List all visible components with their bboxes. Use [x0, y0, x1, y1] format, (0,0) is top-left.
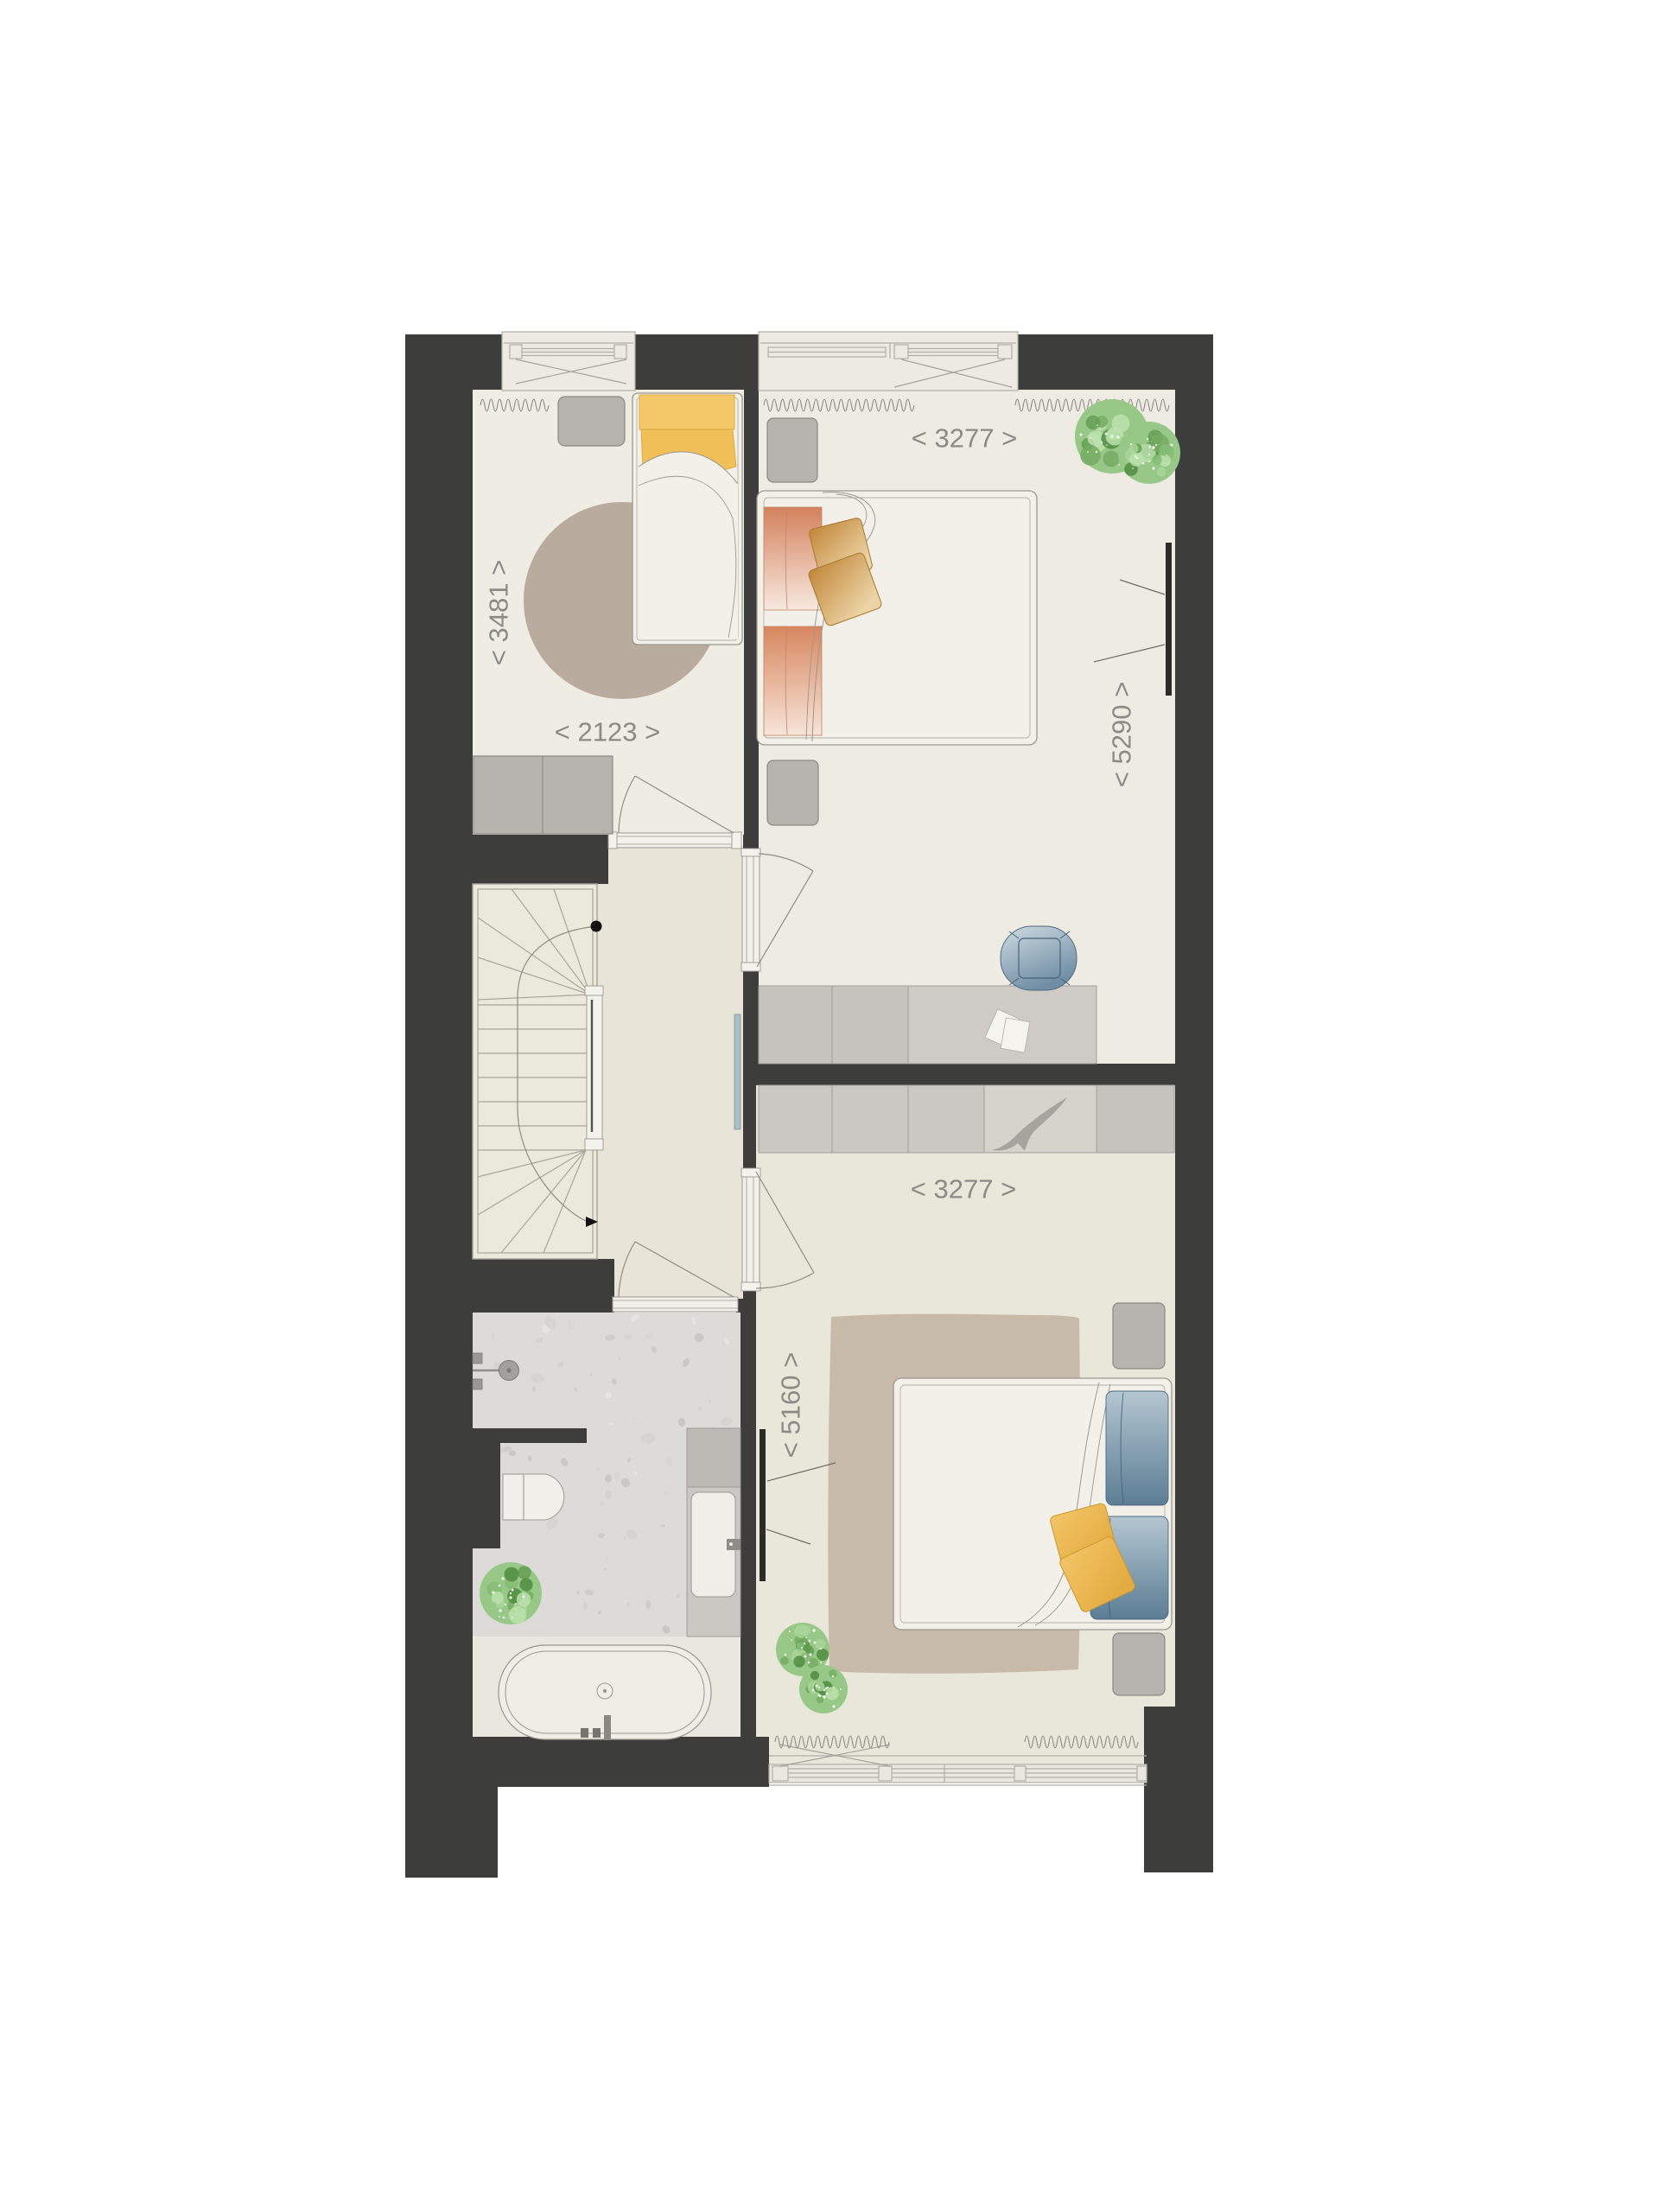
- svg-text:< 2123 >: < 2123 >: [555, 717, 660, 747]
- svg-text:< 5160 >: < 5160 >: [776, 1352, 806, 1458]
- svg-text:< 5290 >: < 5290 >: [1107, 682, 1137, 787]
- svg-text:< 3277 >: < 3277 >: [911, 1174, 1016, 1205]
- svg-text:< 3277 >: < 3277 >: [912, 423, 1017, 454]
- svg-text:< 3481 >: < 3481 >: [484, 560, 514, 665]
